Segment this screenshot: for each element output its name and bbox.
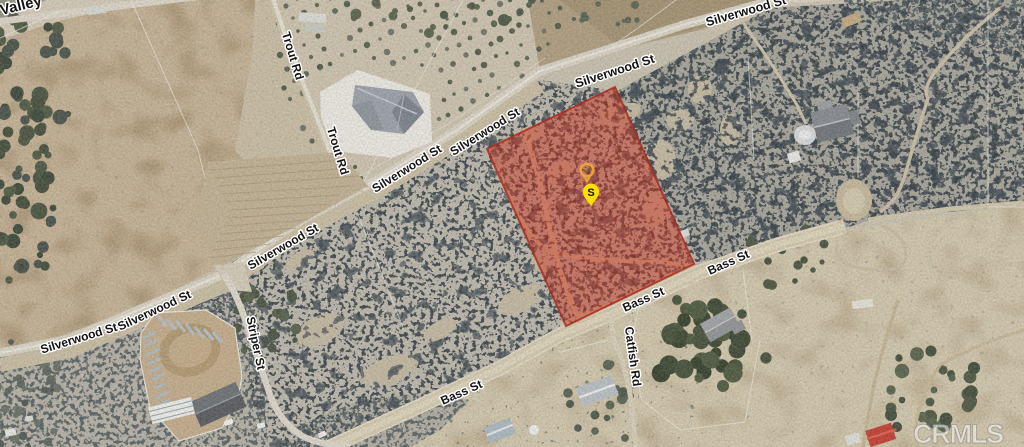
svg-text:CRMLS: CRMLS [913, 419, 1003, 447]
svg-text:S: S [587, 187, 594, 199]
